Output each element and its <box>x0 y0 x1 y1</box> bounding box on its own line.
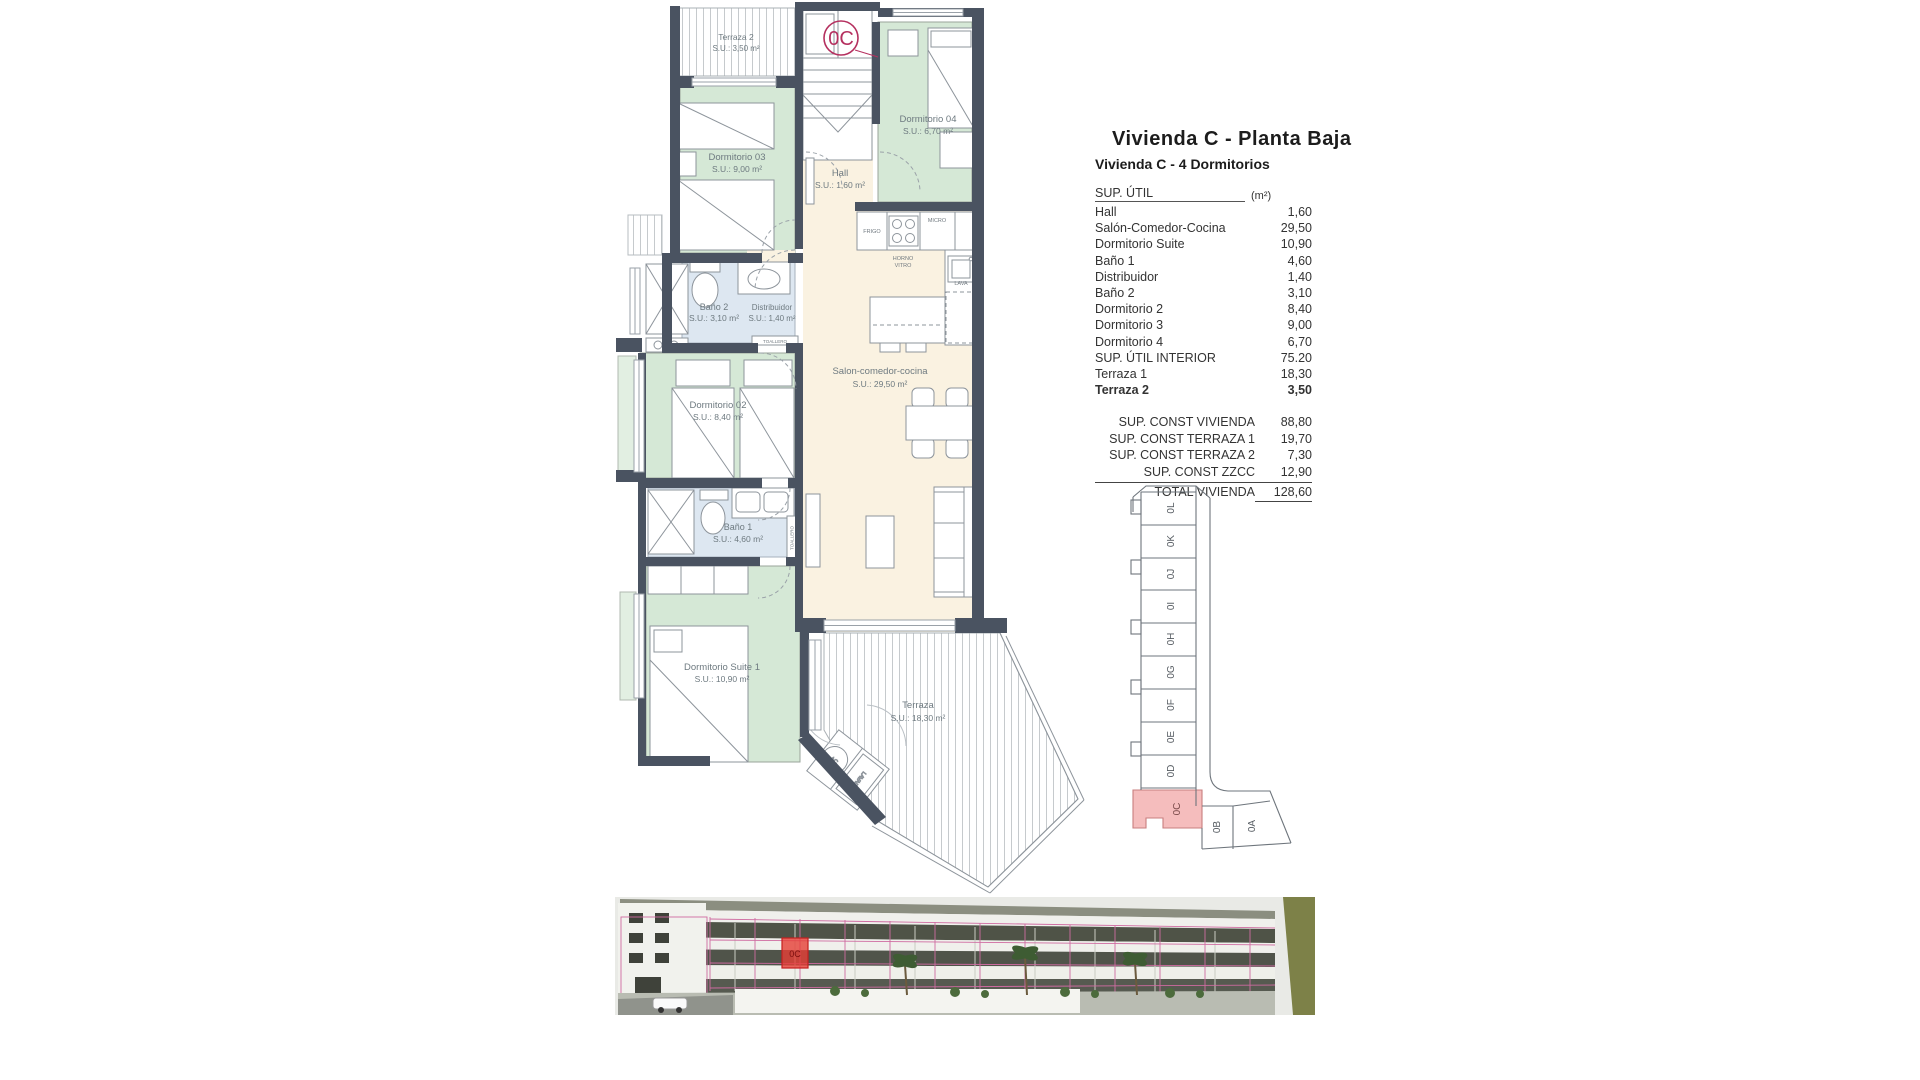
building-facade <box>620 899 1275 993</box>
row-value: 9,00 <box>1288 317 1312 333</box>
neighbor-terrace-sliver <box>628 215 662 255</box>
page-title: Vivienda C - Planta Baja <box>1112 128 1352 151</box>
room-area-terraza1: S.U.: 18,30 m² <box>891 713 946 723</box>
chair <box>946 438 968 458</box>
key-plan-unit-0j: 0J <box>1166 569 1177 580</box>
room-area-dorm02: S.U.: 8,40 m² <box>693 412 743 422</box>
room-label-dorm03: Dormitorio 03 <box>708 152 765 163</box>
room-area-bano2: S.U.: 3,10 m² <box>689 313 739 323</box>
table-row: Distribuidor1,40 <box>1095 269 1312 285</box>
building-render-photo: 0C <box>615 895 1315 1017</box>
row-value: 1,60 <box>1288 204 1312 220</box>
table-row: Hall1,60 <box>1095 204 1312 220</box>
room-label-suite: Dormitorio Suite 1 <box>684 662 760 673</box>
stool <box>906 343 926 352</box>
room-label-bano2: Baño 2 <box>700 302 729 312</box>
room-area-terraza2: S.U.: 3,50 m² <box>712 44 759 53</box>
key-plan-unit-0c-highlight <box>1133 790 1202 828</box>
kitchen-island <box>870 297 945 343</box>
chair <box>912 388 934 408</box>
foreground <box>618 989 1275 1015</box>
summary-row: SUP. CONST TERRAZA 27,30 <box>1095 447 1312 464</box>
row-label: Terraza 1 <box>1095 366 1147 382</box>
sink <box>764 492 788 512</box>
row-value: 3,10 <box>1288 285 1312 301</box>
table-row: Salón-Comedor-Cocina29,50 <box>1095 220 1312 236</box>
key-plan-unit-0d: 0D <box>1166 765 1177 778</box>
row-value: 3,50 <box>1288 382 1312 398</box>
sofa <box>934 487 974 597</box>
hall-closet <box>806 158 814 204</box>
photo-unit-highlight: 0C <box>782 938 808 968</box>
row-value: 6,70 <box>1288 334 1312 350</box>
hob <box>889 216 918 246</box>
table-row: Baño 14,60 <box>1095 253 1312 269</box>
wardrobe <box>648 566 748 594</box>
car <box>653 998 687 1009</box>
key-plan-unit-0k: 0K <box>1166 535 1177 548</box>
room-label-distribuidor: Distribuidor <box>752 303 793 312</box>
key-plan-unit-0c: 0C <box>1172 803 1183 816</box>
row-value: 75.20 <box>1281 350 1312 366</box>
row-label: Dormitorio 3 <box>1095 317 1163 333</box>
row-label: Hall <box>1095 204 1117 220</box>
room-area-hall: S.U.: 1,60 m² <box>815 180 865 190</box>
floor-plan: AC LAVAD <box>610 0 1090 900</box>
summary-value: 7,30 <box>1255 447 1312 464</box>
key-plan-unit-0g: 0G <box>1166 665 1177 679</box>
surface-table: SUP. ÚTIL (m²) Hall1,60 Salón-Comedor-Co… <box>1095 186 1312 398</box>
table-row: SUP. ÚTIL INTERIOR75.20 <box>1095 350 1312 366</box>
room-area-suite: S.U.: 10,90 m² <box>695 674 750 684</box>
room-area-salon: S.U.: 29,50 m² <box>853 379 908 389</box>
neighbor-room-sliver-1 <box>618 356 636 474</box>
table-row: Baño 23,10 <box>1095 285 1312 301</box>
room-label-dorm04: Dormitorio 04 <box>899 114 956 125</box>
table-row: Dormitorio 39,00 <box>1095 317 1312 333</box>
toilet-tank <box>700 490 728 500</box>
row-label: Terraza 2 <box>1095 382 1149 398</box>
key-plan-unit-0l: 0L <box>1166 502 1177 514</box>
page-subtitle: Vivienda C - 4 Dormitorios <box>1095 156 1270 172</box>
horno-label-2: VITRO <box>895 263 913 269</box>
left-tower <box>618 903 706 1005</box>
table-row: Terraza 23,50 <box>1095 382 1312 398</box>
tv-bench <box>806 494 820 567</box>
chair <box>912 438 934 458</box>
horno-label-1: HORNO <box>893 256 914 262</box>
dishwasher-space <box>946 292 976 343</box>
key-plan-unit-0h: 0H <box>1166 633 1177 646</box>
summary-row: SUP. CONST TERRAZA 119,70 <box>1095 431 1312 448</box>
room-area-dorm04: S.U.: 6,70 m² <box>903 126 953 136</box>
summary-label: SUP. CONST VIVIENDA <box>1095 414 1255 431</box>
row-value: 4,60 <box>1288 253 1312 269</box>
summary-label: SUP. CONST ZZCC <box>1095 464 1255 481</box>
row-label: Dormitorio 4 <box>1095 334 1163 350</box>
key-plan-unit-labels: 0L 0K 0J 0I 0H 0G 0F 0E 0D 0C 0B 0A <box>1166 502 1258 833</box>
unit-badge-label: 0C <box>828 28 854 50</box>
surface-table-header-label: SUP. ÚTIL <box>1095 186 1245 202</box>
chair <box>946 388 968 408</box>
toallero-label-2: TOALLERO <box>790 526 795 550</box>
dining-table <box>906 406 976 440</box>
sink <box>748 269 780 289</box>
row-label: Dormitorio Suite <box>1095 236 1185 252</box>
table-row: Dormitorio Suite10,90 <box>1095 236 1312 252</box>
summary-label: SUP. CONST TERRAZA 2 <box>1095 447 1255 464</box>
room-area-distribuidor: S.U.: 1,40 m² <box>748 314 795 323</box>
row-label: Baño 1 <box>1095 253 1135 269</box>
table-row: Dormitorio 28,40 <box>1095 301 1312 317</box>
summary-value: 19,70 <box>1255 431 1312 448</box>
toilet-tank <box>690 262 720 272</box>
dresser <box>940 132 974 168</box>
room-label-terraza2: Terraza 2 <box>718 32 754 42</box>
table-row: Terraza 118,30 <box>1095 366 1312 382</box>
key-plan-unit-0b: 0B <box>1212 821 1223 834</box>
room-label-terraza1: Terraza <box>902 700 934 711</box>
table-row: Dormitorio 46,70 <box>1095 334 1312 350</box>
surface-table-header: SUP. ÚTIL (m²) <box>1095 186 1312 202</box>
key-plan-unit-0a: 0A <box>1247 820 1258 833</box>
summary-label: SUP. CONST TERRAZA 1 <box>1095 431 1255 448</box>
row-label: Distribuidor <box>1095 269 1158 285</box>
toallero-label-1: TOALLERO <box>763 339 787 344</box>
key-plan-unit-0e: 0E <box>1166 731 1177 744</box>
key-plan-unit-0i: 0I <box>1166 602 1177 610</box>
room-area-bano1: S.U.: 4,60 m² <box>713 534 763 544</box>
summary-row: SUP. CONST VIVIENDA88,80 <box>1095 414 1312 431</box>
summary-value: 88,80 <box>1255 414 1312 431</box>
summary-value: 12,90 <box>1255 464 1312 481</box>
lava-label: LAVA <box>954 281 968 287</box>
room-label-hall: Hall <box>832 168 848 179</box>
room-label-salon: Salon-comedor-cocina <box>832 366 928 377</box>
photo-unit-label: 0C <box>789 949 801 959</box>
row-label: Dormitorio 2 <box>1095 301 1163 317</box>
terraza2-floor <box>674 8 798 76</box>
row-value: 8,40 <box>1288 301 1312 317</box>
key-plan: 0L 0K 0J 0I 0H 0G 0F 0E 0D 0C 0B 0A <box>1125 480 1305 870</box>
toilet <box>701 502 725 534</box>
stool <box>880 343 900 352</box>
key-plan-unit-0f: 0F <box>1166 699 1177 711</box>
coffee-table <box>866 516 894 568</box>
room-label-bano1: Baño 1 <box>724 522 753 532</box>
row-value: 10,90 <box>1281 236 1312 252</box>
surface-table-header-unit: (m²) <box>1251 190 1271 202</box>
sink <box>736 492 760 512</box>
row-value: 1,40 <box>1288 269 1312 285</box>
frigo-label: FRIGO <box>863 229 881 235</box>
room-area-dorm03: S.U.: 9,00 m² <box>712 164 762 174</box>
summary-row: SUP. CONST ZZCC12,90 <box>1095 464 1312 481</box>
row-label: Baño 2 <box>1095 285 1135 301</box>
nightstand <box>888 30 918 56</box>
room-label-dorm02: Dormitorio 02 <box>689 400 746 411</box>
row-value: 18,30 <box>1281 366 1312 382</box>
row-value: 29,50 <box>1281 220 1312 236</box>
row-label: Salón-Comedor-Cocina <box>1095 220 1226 236</box>
row-label: SUP. ÚTIL INTERIOR <box>1095 350 1216 366</box>
micro-label: MICRO <box>928 218 947 224</box>
nightstand <box>678 152 696 176</box>
